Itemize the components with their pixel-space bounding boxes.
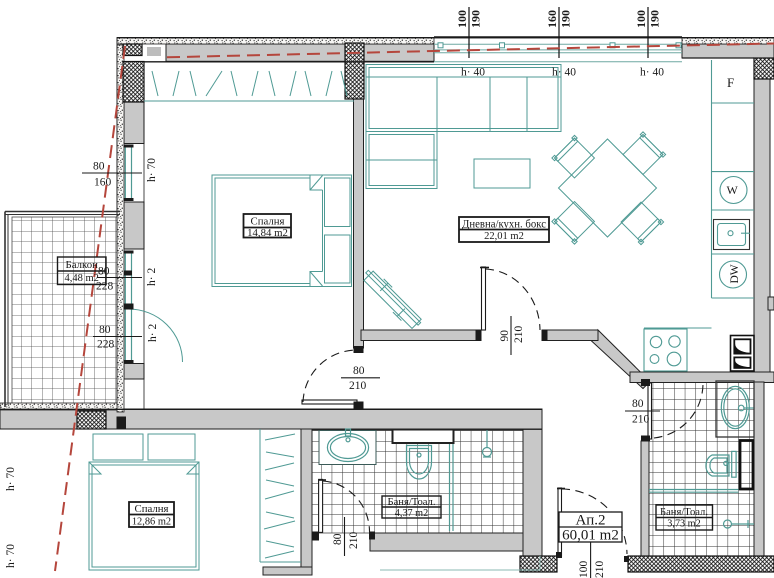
svg-text:F: F <box>727 75 734 90</box>
svg-text:Баня/Тоал.: Баня/Тоал. <box>660 507 708 518</box>
svg-text:190: 190 <box>469 10 483 28</box>
svg-text:190: 190 <box>648 10 662 28</box>
svg-text:60,01 m2: 60,01 m2 <box>562 528 619 544</box>
svg-text:DW: DW <box>729 264 741 283</box>
svg-text:3,73 m2: 3,73 m2 <box>667 519 700 530</box>
svg-text:4,37 m2: 4,37 m2 <box>395 508 428 519</box>
svg-text:14,84 m2: 14,84 m2 <box>247 227 288 239</box>
svg-text:80: 80 <box>98 266 110 278</box>
svg-text:h· 70: h· 70 <box>146 158 158 182</box>
svg-text:h· 2: h· 2 <box>146 268 158 286</box>
svg-text:160: 160 <box>545 10 559 28</box>
svg-text:228: 228 <box>97 339 115 351</box>
svg-text:210: 210 <box>348 532 360 550</box>
svg-text:Спалня: Спалня <box>135 503 169 515</box>
svg-text:h· 70: h· 70 <box>5 544 17 568</box>
svg-text:100: 100 <box>634 10 648 28</box>
svg-text:80: 80 <box>332 533 344 545</box>
svg-text:80: 80 <box>632 398 644 410</box>
svg-text:80: 80 <box>99 324 111 336</box>
svg-text:228: 228 <box>96 281 114 293</box>
svg-text:h· 2: h· 2 <box>147 324 159 342</box>
svg-text:90: 90 <box>499 330 511 342</box>
svg-text:4,48 m2: 4,48 m2 <box>64 273 98 284</box>
svg-text:210: 210 <box>349 380 367 392</box>
svg-text:80: 80 <box>93 161 105 173</box>
svg-text:100: 100 <box>578 561 590 578</box>
svg-text:12,86 m2: 12,86 m2 <box>132 517 171 528</box>
svg-text:h· 40: h· 40 <box>640 67 664 79</box>
svg-text:h· 70: h· 70 <box>5 467 17 491</box>
svg-text:Баня/Тоал.: Баня/Тоал. <box>388 497 436 508</box>
svg-text:210: 210 <box>594 561 606 578</box>
svg-text:Балкон: Балкон <box>66 259 99 271</box>
svg-text:100: 100 <box>455 10 469 28</box>
svg-text:80: 80 <box>353 365 365 377</box>
svg-text:W: W <box>727 183 739 197</box>
svg-text:190: 190 <box>559 10 573 28</box>
svg-text:h· 40: h· 40 <box>461 67 485 79</box>
svg-text:Спалня: Спалня <box>251 216 285 228</box>
svg-text:Дневна/кухн. бокс: Дневна/кухн. бокс <box>462 217 546 231</box>
svg-text:22,01 m2: 22,01 m2 <box>484 231 524 242</box>
svg-text:Ап.2: Ап.2 <box>575 513 605 529</box>
svg-text:210: 210 <box>632 414 650 426</box>
svg-text:h· 40: h· 40 <box>552 67 576 79</box>
svg-text:160: 160 <box>94 177 112 189</box>
svg-text:210: 210 <box>513 326 525 344</box>
